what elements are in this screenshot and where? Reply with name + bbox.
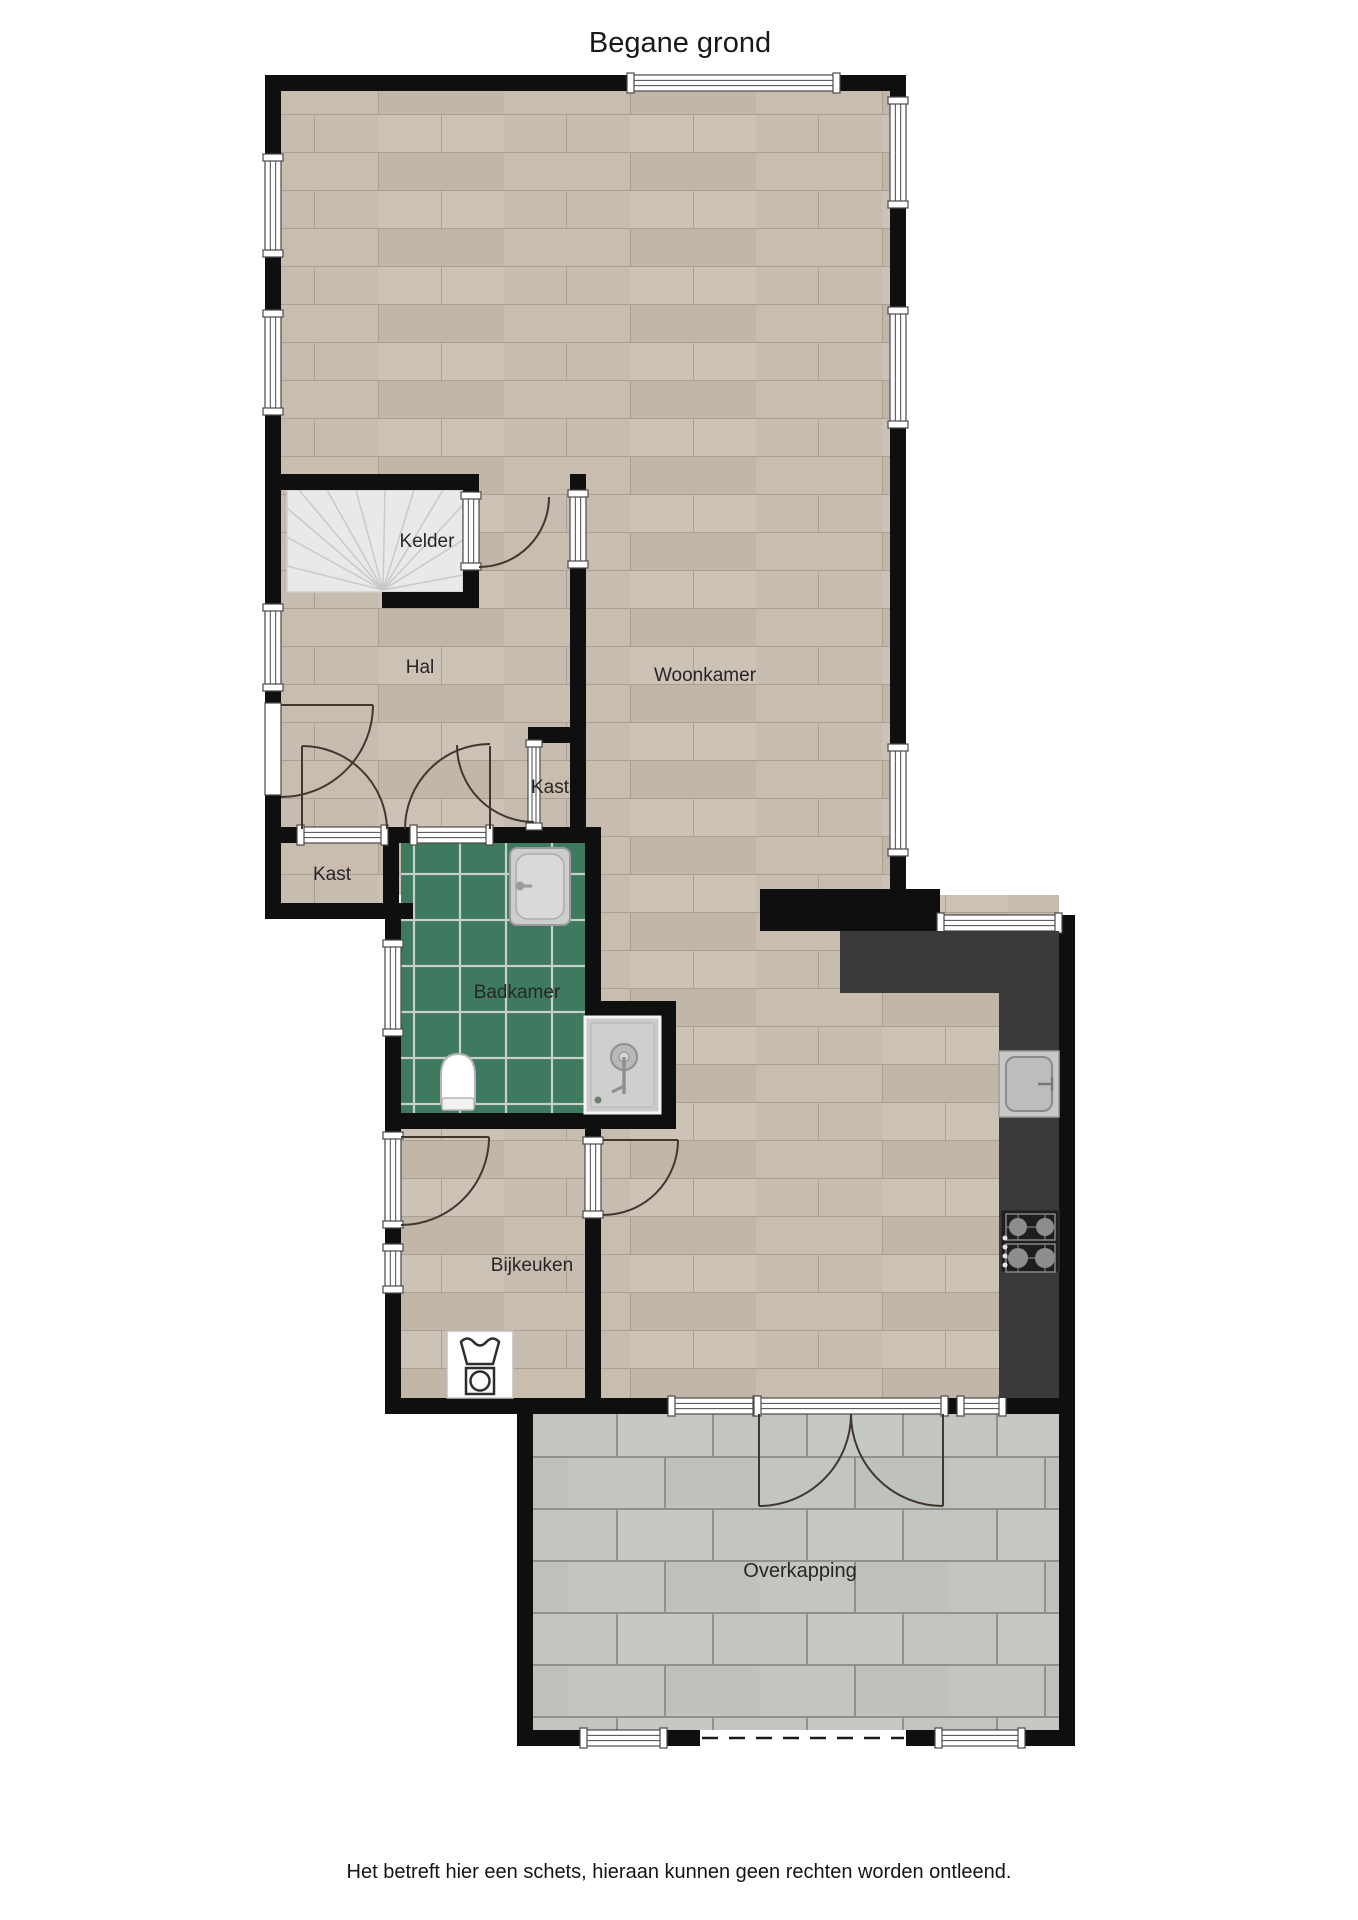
open-side-dashed <box>700 1730 906 1746</box>
wall <box>382 592 479 608</box>
wall <box>837 75 906 91</box>
sink-icon <box>999 1051 1059 1117</box>
floorplan-page: Begane grond <box>0 0 1358 1920</box>
wall <box>265 827 300 843</box>
toilet-icon <box>441 1054 475 1110</box>
room-label-badkamer: Badkamer <box>474 982 561 1003</box>
room-label-woonkamer: Woonkamer <box>654 665 757 686</box>
window-icon <box>957 1396 1006 1416</box>
window-icon <box>263 604 283 691</box>
wall <box>385 1290 401 1414</box>
room-label-kast-middle: Kast <box>531 777 570 798</box>
wall <box>1059 915 1075 1746</box>
wall <box>890 425 906 747</box>
wall <box>385 1113 676 1129</box>
window-icon <box>583 1137 603 1218</box>
wall <box>585 843 601 1001</box>
wall <box>265 254 281 313</box>
wall <box>265 474 479 490</box>
room-label-overkapping: Overkapping <box>743 1560 856 1582</box>
window-icon <box>383 1244 403 1293</box>
floorplan-svg: Begane grond <box>0 0 1358 1920</box>
window-icon <box>263 154 283 257</box>
window-icon <box>888 307 908 428</box>
front-door-opening <box>265 703 281 795</box>
room-label-bijkeuken: Bijkeuken <box>491 1255 573 1276</box>
wall <box>265 75 630 91</box>
window-icon <box>410 825 493 845</box>
wall <box>265 412 281 607</box>
window-icon <box>935 1728 1025 1748</box>
wall <box>1003 1398 1059 1414</box>
wall <box>1022 1730 1075 1746</box>
wall <box>517 1414 533 1746</box>
shower-icon <box>585 1017 660 1113</box>
room-label-kelder: Kelder <box>400 531 456 552</box>
window-icon <box>627 73 840 93</box>
wall <box>265 795 281 919</box>
window-icon <box>580 1728 667 1748</box>
window-icon <box>888 744 908 856</box>
wall <box>385 1398 601 1414</box>
window-icon <box>568 490 588 568</box>
wall <box>265 903 413 919</box>
wall <box>906 1730 938 1746</box>
bathtub-icon <box>510 848 570 925</box>
wall <box>490 827 601 843</box>
window-icon <box>383 1132 403 1228</box>
wall <box>585 1215 601 1398</box>
wall <box>890 853 906 889</box>
window-icon <box>383 940 403 1036</box>
page-title: Begane grond <box>589 27 771 59</box>
window-icon <box>461 492 481 570</box>
room-label-kast-left: Kast <box>313 864 352 885</box>
stove-icon <box>1001 1210 1059 1272</box>
wall <box>570 565 586 727</box>
wall <box>760 889 940 931</box>
wall <box>265 91 281 157</box>
washing-machine-icon <box>447 1331 513 1398</box>
wall <box>664 1730 700 1746</box>
window-icon <box>297 825 388 845</box>
wall <box>890 205 906 310</box>
window-icon <box>754 1396 948 1416</box>
wall <box>517 1730 583 1746</box>
wall <box>660 1001 676 1129</box>
disclaimer-text: Het betreft hier een schets, hieraan kun… <box>347 1861 1012 1883</box>
window-icon <box>888 97 908 208</box>
wall <box>601 1398 671 1414</box>
window-icon <box>668 1396 760 1416</box>
window-icon <box>937 913 1062 933</box>
room-label-hal: Hal <box>406 657 435 678</box>
wall <box>385 827 413 843</box>
window-icon <box>263 310 283 415</box>
